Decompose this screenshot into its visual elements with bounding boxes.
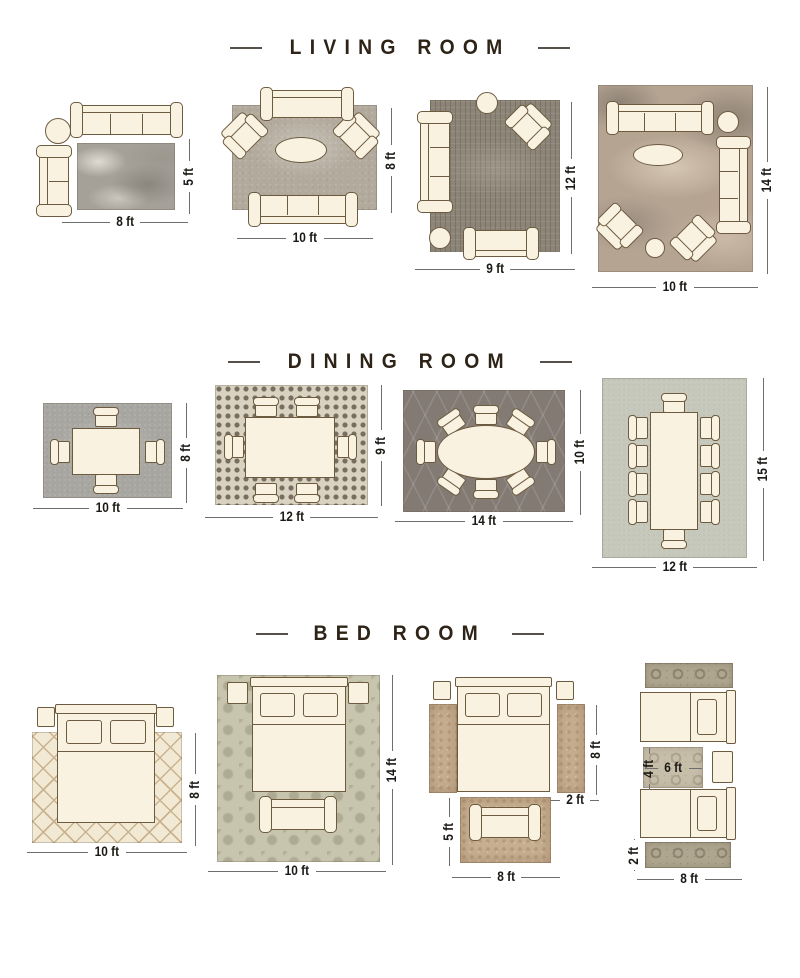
sofa-arm xyxy=(528,804,541,841)
dining-chair xyxy=(536,441,552,463)
sofa-seats xyxy=(79,114,174,134)
side-table xyxy=(717,111,739,133)
sofa-cushion xyxy=(269,99,345,117)
section-title-living-room: LIVING ROOM xyxy=(0,36,800,60)
dining-table-oval xyxy=(437,425,535,479)
sofa-back xyxy=(420,119,429,205)
loveseat xyxy=(36,145,72,217)
sofa-body xyxy=(267,799,329,830)
sofa-arm xyxy=(260,87,273,121)
dining-chair xyxy=(228,436,244,458)
title-dash-right xyxy=(512,633,544,635)
dimension-text: 8 ft xyxy=(681,872,699,886)
dimension-width: 14 ft xyxy=(395,514,573,528)
dimension-line xyxy=(452,877,491,878)
dining-table xyxy=(245,417,335,478)
dimension-line xyxy=(693,567,757,568)
dimension-text: 14 ft xyxy=(472,514,496,528)
bed xyxy=(252,679,346,792)
dining-chair xyxy=(420,441,436,463)
sofa-seats xyxy=(257,196,349,215)
dimension-line xyxy=(694,287,758,288)
dimension-foot-rug-width: 8 ft xyxy=(452,870,560,884)
dining-chair xyxy=(145,441,161,463)
living-rug-8x5 xyxy=(77,143,175,210)
sofa-seats xyxy=(720,145,738,225)
dimension-line xyxy=(510,269,575,270)
nightstand xyxy=(556,681,574,700)
section-title-text: LIVING ROOM xyxy=(290,36,511,60)
dimension-text: 2 ft xyxy=(566,793,584,807)
dimension-text: 8 ft xyxy=(116,215,134,229)
runner-rug-top xyxy=(645,663,733,688)
bed xyxy=(57,706,155,823)
sofa-back xyxy=(78,105,175,113)
sofa-cushion xyxy=(720,145,738,172)
dimension-runner-length: 8 ft xyxy=(589,705,603,795)
dimension-line xyxy=(186,468,187,503)
dimension-text: 10 ft xyxy=(96,501,120,515)
dimension-line xyxy=(649,784,650,790)
sofa-cushion xyxy=(111,114,143,134)
sofa-body xyxy=(477,807,533,838)
dimension-text: 9 ft xyxy=(486,262,504,276)
dimension-line xyxy=(205,517,273,518)
dining-chair xyxy=(95,411,117,427)
sofa-cushion xyxy=(472,231,530,249)
sofa-arm xyxy=(341,87,354,121)
dining-chair xyxy=(632,417,648,439)
dimension-line xyxy=(503,521,573,522)
dimension-line xyxy=(324,238,373,239)
dining-chair xyxy=(475,409,497,425)
side-table xyxy=(645,238,665,258)
dimension-line xyxy=(195,733,196,774)
dimension-line xyxy=(208,871,278,872)
nightstand xyxy=(712,751,733,783)
sofa xyxy=(260,87,354,121)
rug-size-guide-infographic: LIVING ROOM 8 ft 5 ft xyxy=(0,0,800,978)
dimension-line xyxy=(316,871,386,872)
dimension-runner-width: 2 ft xyxy=(551,793,599,807)
dimension-text: 10 ft xyxy=(573,440,587,464)
blanket-fold xyxy=(690,692,691,742)
dimension-line xyxy=(763,378,764,451)
dining-chair xyxy=(700,473,716,495)
loveseat xyxy=(463,227,539,260)
dimension-height: 14 ft xyxy=(760,87,774,274)
dimension-line xyxy=(580,390,581,434)
nightstand xyxy=(37,707,55,727)
dimension-line xyxy=(381,461,382,506)
dimension-line xyxy=(596,765,597,795)
pillow xyxy=(303,693,338,717)
sofa-back xyxy=(739,144,748,226)
sofa-arm xyxy=(463,227,476,260)
dimension-line xyxy=(689,768,702,769)
dining-table xyxy=(72,428,140,475)
dimension-height: 8 ft xyxy=(384,108,398,213)
sofa xyxy=(606,101,714,135)
dimension-text: 12 ft xyxy=(564,166,578,190)
sofa-cushion xyxy=(645,113,675,131)
sofa-back xyxy=(471,250,531,258)
dimension-line xyxy=(186,403,187,438)
sofa-body xyxy=(256,195,350,224)
dimension-line xyxy=(189,139,190,161)
sofa xyxy=(70,102,183,138)
dimension-line xyxy=(381,385,382,430)
dining-chair xyxy=(255,401,277,417)
bench xyxy=(469,804,541,841)
pillow xyxy=(697,699,717,735)
sofa-body xyxy=(471,230,531,257)
section-title-text: BED ROOM xyxy=(314,622,487,646)
dining-chair xyxy=(337,436,353,458)
sofa-cushion xyxy=(49,154,68,182)
dimension-text: 8 ft xyxy=(179,444,193,462)
dimension-line xyxy=(645,768,658,769)
dimension-height: 8 ft xyxy=(179,403,193,503)
sofa-seats xyxy=(472,231,530,249)
sofa-back xyxy=(39,153,48,209)
sofa-arm xyxy=(701,101,714,135)
sofa-body xyxy=(39,153,69,209)
sofa-cushion xyxy=(478,816,532,837)
dimension-text: 9 ft xyxy=(374,437,388,455)
sofa-arm xyxy=(716,136,751,149)
sofa-arm xyxy=(324,796,337,833)
pillow xyxy=(66,720,102,744)
dining-chair xyxy=(296,483,318,499)
dining-chair xyxy=(700,445,716,467)
title-dash-left xyxy=(230,47,262,49)
sofa-arm xyxy=(259,796,272,833)
sofa-arm xyxy=(170,102,183,138)
nightstand xyxy=(348,682,369,704)
pillow xyxy=(260,693,295,717)
dimension-runner-width: 2 ft xyxy=(627,840,641,871)
dimension-height: 15 ft xyxy=(756,378,770,561)
dimension-width: 10 ft xyxy=(592,280,758,294)
title-dash-right xyxy=(540,361,572,363)
sofa-seats xyxy=(268,808,328,829)
dimension-line xyxy=(415,269,480,270)
section-title-dining-room: DINING ROOM xyxy=(0,350,800,374)
pillow xyxy=(507,693,542,717)
sofa-arm xyxy=(606,101,619,135)
dimension-runner-length: 8 ft xyxy=(637,872,742,886)
dimension-line xyxy=(637,879,674,880)
dimension-line xyxy=(551,800,560,801)
sofa-cushion xyxy=(268,808,328,829)
sofa-seats xyxy=(615,113,705,131)
sofa-back xyxy=(477,807,533,816)
pillow xyxy=(465,693,500,717)
sofa xyxy=(716,136,751,234)
dimension-line xyxy=(449,798,450,817)
sofa-body xyxy=(420,119,450,205)
dimension-text: 8 ft xyxy=(497,870,515,884)
blanket-fold xyxy=(690,789,691,838)
twin-bed xyxy=(640,789,734,838)
sofa-seats xyxy=(269,99,345,117)
dimension-line xyxy=(449,847,450,866)
sofa-arm xyxy=(345,192,358,227)
dimension-line xyxy=(310,517,378,518)
sofa-arm xyxy=(526,227,539,260)
dimension-line xyxy=(140,222,188,223)
dimension-text: 5 ft xyxy=(442,823,456,841)
nightstand xyxy=(156,707,174,727)
dining-chair xyxy=(632,473,648,495)
dimension-line xyxy=(763,488,764,561)
dimension-line xyxy=(195,805,196,846)
dimension-line xyxy=(237,238,286,239)
dimension-height: 5 ft xyxy=(182,139,196,214)
section-title-text: DINING ROOM xyxy=(288,350,512,374)
dimension-line xyxy=(649,748,650,754)
dimension-line xyxy=(571,197,572,254)
dining-chair xyxy=(700,417,716,439)
runner-rug-bottom xyxy=(645,842,731,868)
dining-chair xyxy=(663,529,685,545)
sofa-seats xyxy=(430,120,449,204)
dimension-line xyxy=(571,102,572,159)
dimension-text: 8 ft xyxy=(384,152,398,170)
dimension-text: 14 ft xyxy=(760,168,774,192)
dimension-line xyxy=(395,521,465,522)
dimension-height: 10 ft xyxy=(573,390,587,515)
dimension-text: 2 ft xyxy=(627,847,641,865)
dimension-line xyxy=(126,852,187,853)
dimension-width: 9 ft xyxy=(415,262,575,276)
blanket-fold xyxy=(57,751,155,752)
dimension-width: 12 ft xyxy=(205,510,378,524)
headboard xyxy=(726,787,736,840)
headboard xyxy=(55,704,157,714)
dimension-text: 8 ft xyxy=(589,741,603,759)
runner-rug-right xyxy=(557,704,585,793)
sofa-seats xyxy=(478,816,532,837)
side-table xyxy=(476,92,498,114)
sofa-arm xyxy=(36,145,72,158)
sofa-body xyxy=(268,90,346,118)
headboard xyxy=(726,690,736,744)
headboard xyxy=(455,677,552,687)
sofa-cushion xyxy=(288,196,319,215)
dimension-height: 8 ft xyxy=(188,733,202,846)
dimension-text: 15 ft xyxy=(756,457,770,481)
sofa-cushion xyxy=(615,113,645,131)
bench xyxy=(259,796,337,833)
headboard xyxy=(250,677,348,687)
dimension-line xyxy=(590,800,599,801)
pillow xyxy=(110,720,146,744)
pillow xyxy=(697,796,717,831)
blanket-fold xyxy=(457,724,550,725)
dimension-line xyxy=(767,87,768,162)
dimension-height: 14 ft xyxy=(385,675,399,865)
dimension-line xyxy=(596,705,597,735)
sofa-arm xyxy=(36,204,72,217)
dimension-width: 10 ft xyxy=(237,231,373,245)
dimension-line xyxy=(705,879,742,880)
dimension-line xyxy=(592,567,656,568)
dimension-line xyxy=(391,176,392,213)
dimension-height: 9 ft xyxy=(374,385,388,506)
twin-bed xyxy=(640,692,734,742)
dining-chair xyxy=(54,441,70,463)
dimension-text: 10 ft xyxy=(663,280,687,294)
coffee-table xyxy=(275,137,327,163)
sofa-arm xyxy=(417,111,453,124)
dimension-middle-rug-width: 6 ft xyxy=(645,761,702,775)
dining-chair xyxy=(632,501,648,523)
dimension-text: 6 ft xyxy=(665,761,683,775)
runner-rug-left xyxy=(429,704,457,793)
blanket-fold xyxy=(252,724,346,725)
sofa xyxy=(417,111,453,213)
sofa-cushion xyxy=(430,148,449,176)
dimension-text: 10 ft xyxy=(285,864,309,878)
dimension-text: 10 ft xyxy=(293,231,317,245)
title-dash-left xyxy=(228,361,260,363)
coffee-table xyxy=(633,144,683,166)
sofa-arm xyxy=(716,221,751,234)
dimension-foot-rug-height: 5 ft xyxy=(442,798,456,866)
dining-chair xyxy=(95,474,117,490)
sofa-arm xyxy=(248,192,261,227)
sofa-cushion xyxy=(257,196,288,215)
sofa-cushion xyxy=(79,114,111,134)
dining-chair xyxy=(632,445,648,467)
title-dash-right xyxy=(538,47,570,49)
dimension-width: 10 ft xyxy=(33,501,183,515)
sofa-back xyxy=(614,104,706,112)
section-title-bed-room: BED ROOM xyxy=(0,622,800,646)
dimension-text: 14 ft xyxy=(385,758,399,782)
title-dash-left xyxy=(256,633,288,635)
dimension-text: 12 ft xyxy=(279,510,303,524)
dimension-line xyxy=(391,108,392,145)
dining-table xyxy=(650,412,698,530)
sofa-arm xyxy=(469,804,482,841)
dimension-width: 10 ft xyxy=(208,864,386,878)
dimension-line xyxy=(521,877,560,878)
dimension-text: 10 ft xyxy=(95,845,119,859)
sofa-body xyxy=(78,105,175,135)
sofa-back xyxy=(267,799,329,808)
dimension-line xyxy=(127,508,183,509)
sofa-arm xyxy=(417,200,453,213)
sofa-body xyxy=(719,144,748,226)
sofa-body xyxy=(614,104,706,132)
nightstand xyxy=(433,681,451,700)
dimension-line xyxy=(580,471,581,515)
sofa-seats xyxy=(49,154,68,208)
dining-chair xyxy=(255,483,277,499)
sofa-back xyxy=(256,216,350,224)
sofa-back xyxy=(268,90,346,98)
sofa-cushion xyxy=(430,120,449,148)
dimension-height: 12 ft xyxy=(564,102,578,254)
bed xyxy=(457,679,550,792)
dimension-width: 8 ft xyxy=(62,215,188,229)
side-table xyxy=(45,118,71,144)
dimension-text: 12 ft xyxy=(662,560,686,574)
dimension-line xyxy=(767,199,768,274)
dimension-line xyxy=(392,675,393,751)
dimension-line xyxy=(33,508,89,509)
dimension-line xyxy=(62,222,110,223)
sofa-cushion xyxy=(720,172,738,199)
side-table xyxy=(429,227,451,249)
nightstand xyxy=(227,682,248,704)
dining-chair xyxy=(296,401,318,417)
sofa-arm xyxy=(70,102,83,138)
dimension-line xyxy=(27,852,88,853)
dimension-text: 5 ft xyxy=(182,168,196,186)
dimension-text: 8 ft xyxy=(188,781,202,799)
dimension-line xyxy=(592,287,656,288)
dining-chair xyxy=(475,479,497,495)
dining-chair xyxy=(700,501,716,523)
sofa xyxy=(248,192,358,227)
dimension-line xyxy=(189,192,190,214)
dining-chair xyxy=(663,397,685,413)
dimension-line xyxy=(392,789,393,865)
dimension-width: 10 ft xyxy=(27,845,187,859)
dimension-width: 12 ft xyxy=(592,560,757,574)
